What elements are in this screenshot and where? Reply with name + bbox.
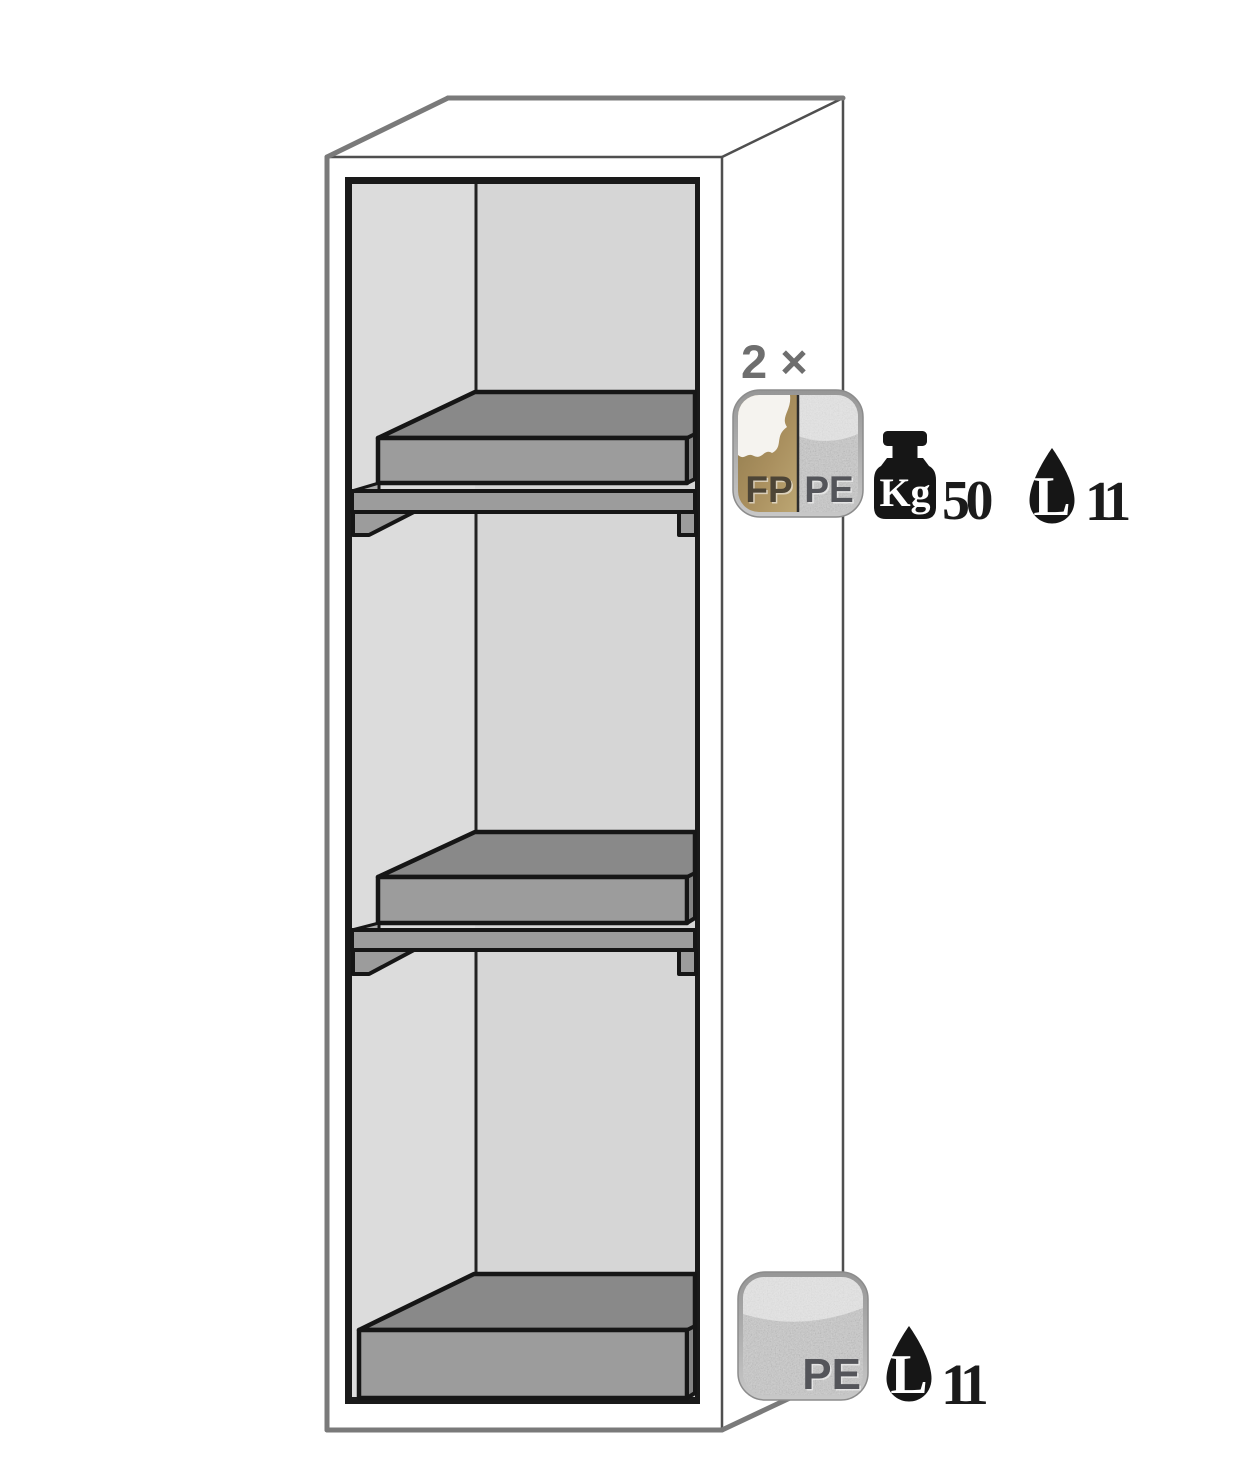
- badge-gloss: [798, 395, 858, 441]
- badge-label-pe: PE: [802, 1350, 861, 1399]
- cabinet-body: [327, 98, 843, 1430]
- tray-front-face: [359, 1330, 687, 1398]
- tray-right-face: [687, 873, 695, 923]
- cabinet-right-face: [722, 98, 843, 1430]
- shelf-volume-value: 11: [1085, 471, 1129, 533]
- tray-right-face: [687, 1326, 695, 1398]
- interior-left-wall: [352, 184, 475, 1397]
- weight-neck: [893, 444, 918, 459]
- interior-back-wall: [475, 184, 695, 1397]
- drop-unit-label: L: [890, 1344, 927, 1406]
- tray-front-face: [378, 877, 687, 923]
- sump-volume-value: 11: [941, 1352, 986, 1417]
- tray-right-face: [687, 434, 695, 483]
- shelf-board: [352, 930, 695, 950]
- badge-label-fp: FP: [745, 469, 792, 510]
- badge-label-pe: PE: [804, 469, 853, 510]
- shelf-quantity-label: 2 ×: [741, 335, 808, 388]
- shelf-load-value: 50: [942, 470, 992, 532]
- sump-volume-capacity: L: [887, 1326, 932, 1406]
- weight-unit-label: Kg: [879, 470, 930, 515]
- sump-material-badge: PE PE: [738, 1272, 868, 1401]
- shelf-bracket-right: [679, 950, 696, 974]
- shelf-material-badge: FP FP PE PE: [733, 390, 863, 517]
- shelf-bracket-right: [679, 512, 696, 535]
- tray-front-face: [378, 438, 687, 483]
- safety-cabinet-illustration: 2 × FP FP PE PE Kg 50 L 11: [0, 0, 1240, 1468]
- shelf-board: [352, 491, 695, 512]
- weight-handle: [883, 431, 927, 446]
- shelf-volume-capacity: L: [1030, 448, 1075, 528]
- drop-unit-label: L: [1033, 466, 1070, 528]
- cabinet-diagram-page: 2 × FP FP PE PE Kg 50 L 11: [0, 0, 1240, 1468]
- shelf-load-capacity: Kg: [874, 431, 936, 519]
